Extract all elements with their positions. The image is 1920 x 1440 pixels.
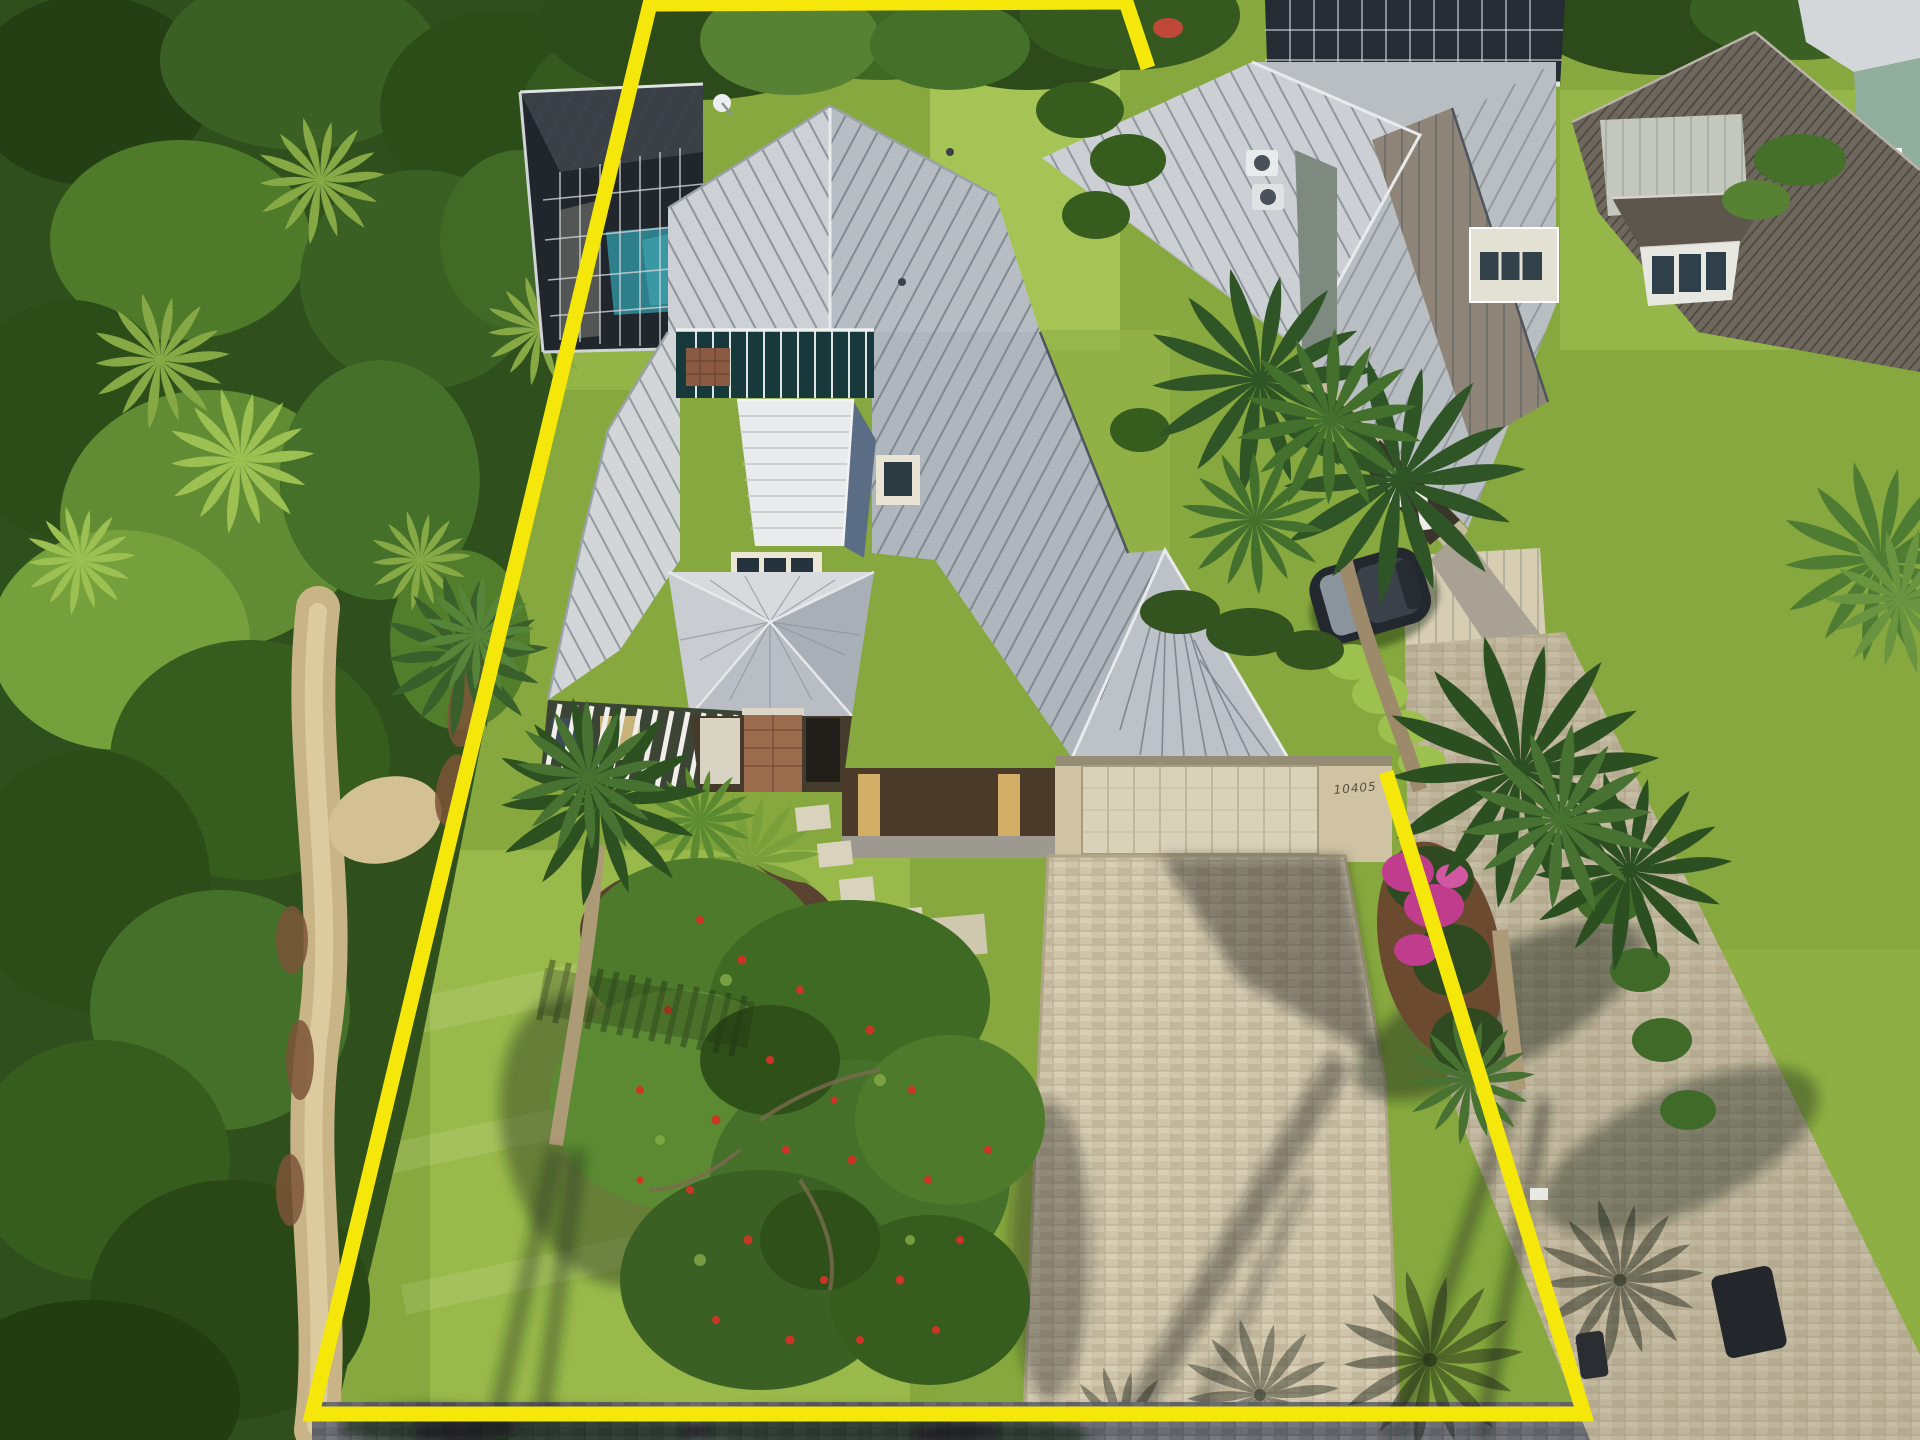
roof-entry-hip — [668, 572, 874, 716]
aerial-photo: 10405 — [0, 0, 1920, 1440]
brick-chimney — [686, 348, 730, 386]
scene-canvas: 10405 — [0, 0, 1920, 1440]
lawn-vent — [1530, 1188, 1548, 1200]
garage-front: 10405 — [1055, 756, 1392, 862]
